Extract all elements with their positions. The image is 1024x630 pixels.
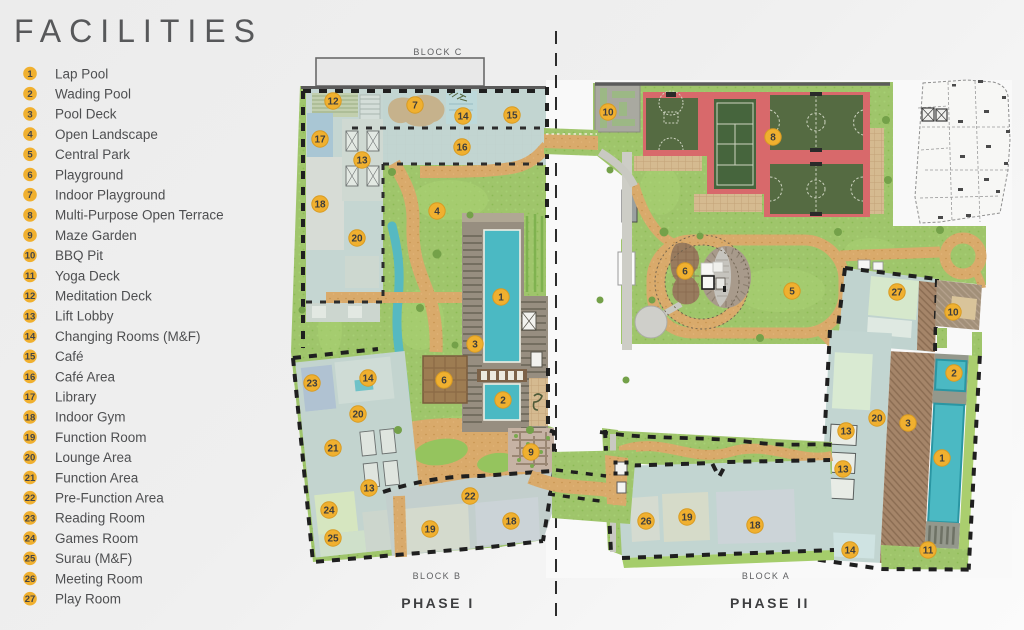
svg-text:9: 9 [27,231,32,242]
svg-text:26: 26 [640,517,652,528]
svg-text:14: 14 [457,112,469,123]
svg-text:Central Park: Central Park [55,147,130,162]
svg-text:Changing Rooms (M&F): Changing Rooms (M&F) [55,329,201,344]
svg-text:16: 16 [25,372,36,383]
svg-text:8: 8 [770,133,776,144]
svg-text:2: 2 [500,396,506,407]
svg-text:Maze Garden: Maze Garden [55,228,137,243]
svg-text:Meeting Room: Meeting Room [55,571,143,586]
svg-text:14: 14 [25,332,36,343]
svg-text:13: 13 [25,311,36,322]
svg-text:25: 25 [327,534,339,545]
svg-text:BBQ Pit: BBQ Pit [55,248,103,263]
svg-text:FACILITIES: FACILITIES [14,13,263,49]
svg-text:7: 7 [412,101,418,112]
svg-text:13: 13 [840,427,852,438]
svg-text:3: 3 [27,109,32,120]
svg-text:Surau (M&F): Surau (M&F) [55,551,132,566]
svg-text:5: 5 [789,287,795,298]
svg-text:2: 2 [951,369,957,380]
svg-text:27: 27 [891,288,903,299]
svg-text:6: 6 [682,267,688,278]
svg-text:Yoga Deck: Yoga Deck [55,268,120,283]
svg-text:Lap Pool: Lap Pool [55,66,108,81]
svg-text:2: 2 [27,89,32,100]
svg-text:3: 3 [472,340,478,351]
svg-text:26: 26 [25,574,36,585]
svg-text:1: 1 [939,454,945,465]
svg-text:12: 12 [327,97,339,108]
svg-text:6: 6 [441,376,447,387]
svg-text:Wading Pool: Wading Pool [55,87,131,102]
svg-text:Lift Lobby: Lift Lobby [55,309,114,324]
svg-text:14: 14 [362,374,374,385]
svg-text:20: 20 [25,453,36,464]
svg-text:10: 10 [25,251,36,262]
svg-text:BLOCK B: BLOCK B [413,571,462,581]
svg-text:Café Area: Café Area [55,369,116,384]
svg-text:1: 1 [498,293,504,304]
svg-text:Pool Deck: Pool Deck [55,107,117,122]
svg-text:27: 27 [25,594,36,605]
svg-text:Function Area: Function Area [55,470,139,485]
svg-text:Multi-Purpose Open Terrace: Multi-Purpose Open Terrace [55,208,224,223]
svg-text:13: 13 [837,465,849,476]
svg-text:12: 12 [25,291,36,302]
svg-text:4: 4 [434,207,440,218]
svg-text:21: 21 [25,473,36,484]
svg-text:11: 11 [25,271,36,282]
svg-text:13: 13 [356,156,368,167]
svg-text:3: 3 [905,419,911,430]
svg-text:15: 15 [25,352,36,363]
svg-text:4: 4 [27,130,33,141]
svg-text:23: 23 [25,513,36,524]
svg-text:1: 1 [27,69,33,80]
svg-text:22: 22 [25,493,36,504]
svg-text:11: 11 [923,546,934,557]
svg-text:19: 19 [25,433,36,444]
svg-text:Pre-Function Area: Pre-Function Area [55,491,164,506]
svg-text:17: 17 [314,135,326,146]
svg-text:Function Room: Function Room [55,430,147,445]
svg-text:6: 6 [27,170,32,181]
svg-text:21: 21 [327,444,339,455]
svg-text:15: 15 [506,111,518,122]
svg-text:Indoor Gym: Indoor Gym [55,410,126,425]
svg-text:9: 9 [528,448,534,459]
svg-text:18: 18 [314,200,326,211]
svg-text:Café: Café [55,349,84,364]
svg-text:Lounge Area: Lounge Area [55,450,132,465]
svg-text:Meditation Deck: Meditation Deck [55,289,152,304]
svg-text:17: 17 [25,392,36,403]
svg-text:Reading Room: Reading Room [55,511,145,526]
svg-text:PHASE II: PHASE II [730,595,810,611]
svg-text:20: 20 [871,414,883,425]
svg-text:Indoor Playground: Indoor Playground [55,188,165,203]
svg-text:23: 23 [306,379,318,390]
svg-text:8: 8 [27,210,32,221]
svg-text:Library: Library [55,390,97,405]
svg-text:24: 24 [323,506,335,517]
svg-text:19: 19 [681,513,693,524]
svg-text:10: 10 [602,108,614,119]
svg-text:5: 5 [27,150,33,161]
svg-text:16: 16 [456,143,468,154]
svg-text:10: 10 [947,308,959,319]
svg-text:22: 22 [464,492,476,503]
svg-text:7: 7 [27,190,32,201]
svg-text:PHASE I: PHASE I [401,595,475,611]
svg-text:BLOCK C: BLOCK C [413,47,462,57]
svg-text:20: 20 [351,234,363,245]
svg-text:18: 18 [505,517,517,528]
svg-text:13: 13 [363,484,375,495]
svg-text:25: 25 [25,554,36,565]
svg-text:19: 19 [424,525,436,536]
svg-text:Playground: Playground [55,167,123,182]
svg-text:Play Room: Play Room [55,592,121,607]
svg-text:18: 18 [749,521,761,532]
svg-text:20: 20 [352,410,364,421]
svg-text:Games Room: Games Room [55,531,138,546]
svg-text:18: 18 [25,412,36,423]
svg-text:BLOCK A: BLOCK A [742,571,790,581]
svg-text:14: 14 [844,546,856,557]
svg-text:24: 24 [25,534,36,545]
svg-text:Open Landscape: Open Landscape [55,127,158,142]
